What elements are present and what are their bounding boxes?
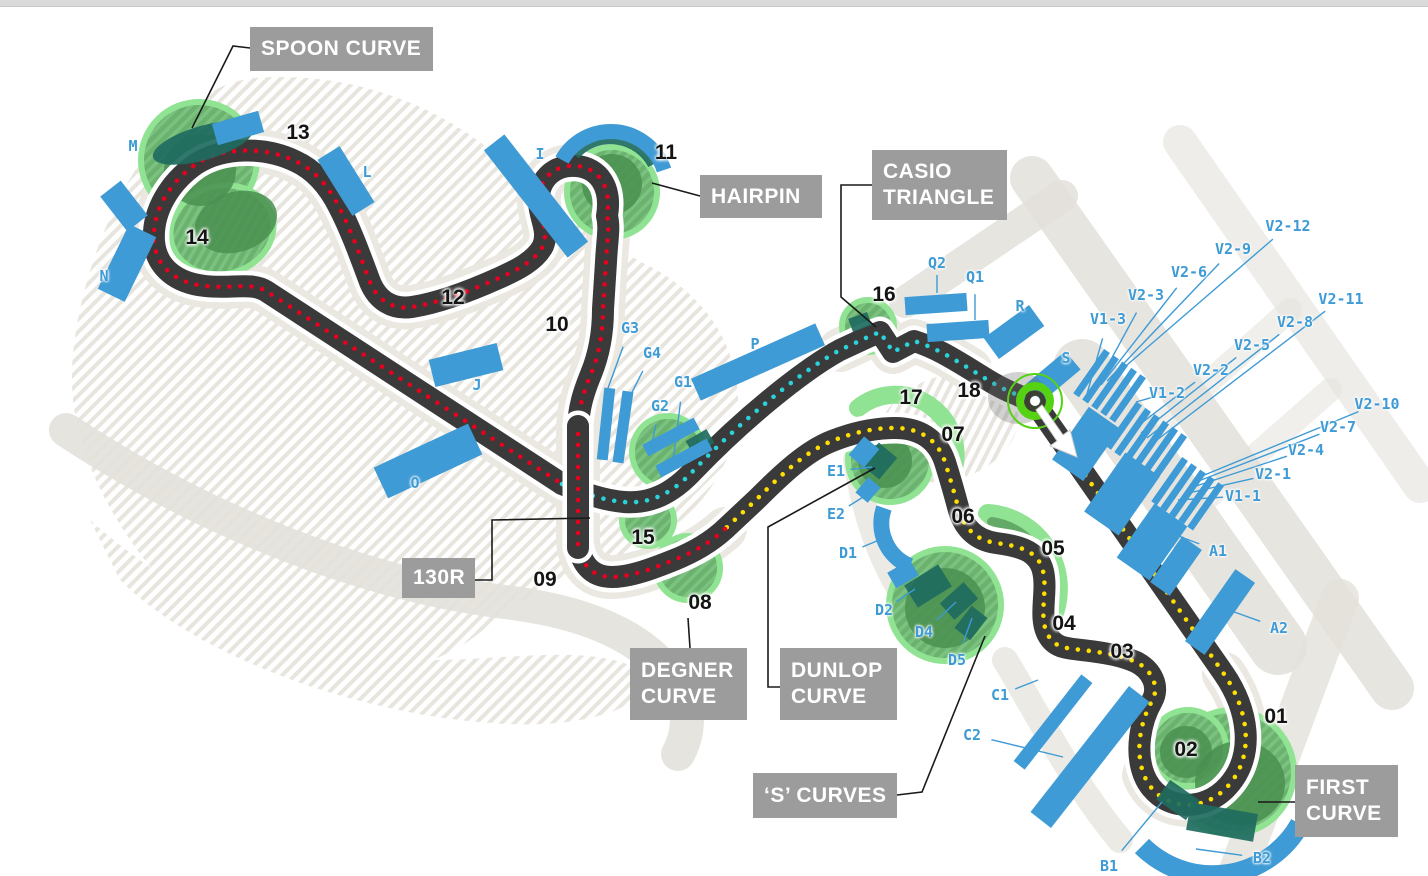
callout-text: CASIO (883, 159, 1007, 185)
callout-casio-triangle: CASIOTRIANGLE (872, 150, 1007, 220)
callout-130r: 130R (402, 558, 475, 598)
callout-text: CURVE (1306, 801, 1398, 827)
circuit-map-svg (0, 0, 1428, 876)
stand-label-v2-2: V2-2 (1193, 361, 1229, 379)
stand-label-b2: B2 (1253, 849, 1271, 867)
callout-text: TRIANGLE (883, 185, 1007, 211)
callout-text: CURVE (641, 684, 747, 710)
corner-label-08: 08 (688, 591, 711, 615)
callout-dunlop-curve: DUNLOPCURVE (780, 648, 897, 720)
stand-label-v1-3: V1-3 (1090, 310, 1126, 328)
stand-label-v2-12: V2-12 (1265, 217, 1310, 235)
stand-label-v2-4: V2-4 (1288, 441, 1324, 459)
corner-label-13: 13 (286, 121, 309, 145)
callout-text: SPOON CURVE (261, 36, 433, 62)
callout-text: HAIRPIN (711, 184, 822, 210)
stand-label-v2-1: V2-1 (1255, 465, 1291, 483)
corner-label-16: 16 (872, 283, 895, 307)
corner-label-06: 06 (951, 505, 974, 529)
stand-label-v1-1: V1-1 (1225, 487, 1261, 505)
stand-label-v2-11: V2-11 (1318, 290, 1363, 308)
stand-label-b1: B1 (1100, 857, 1118, 875)
stand-label-d2: D2 (875, 601, 893, 619)
corner-label-04: 04 (1052, 612, 1075, 636)
stand-label-v1-2: V1-2 (1149, 384, 1185, 402)
callout-degner-curve: DEGNERCURVE (630, 648, 747, 720)
stand-label-a2: A2 (1270, 619, 1288, 637)
stand-label-v2-7: V2-7 (1320, 418, 1356, 436)
corner-label-18: 18 (957, 379, 980, 403)
stand-label-v2-3: V2-3 (1128, 286, 1164, 304)
corner-label-03: 03 (1110, 640, 1133, 664)
stand-label-g1: G1 (674, 373, 692, 391)
stand-label-v2-6: V2-6 (1171, 263, 1207, 281)
stand-label-v2-5: V2-5 (1234, 336, 1270, 354)
callout-text: CURVE (791, 684, 897, 710)
stand-label-q1: Q1 (966, 268, 984, 286)
stand-label-g2: G2 (651, 397, 669, 415)
callout-s-curves: ‘S’ CURVES (753, 773, 897, 818)
callout-text: 130R (413, 565, 475, 591)
stand-label-n: N (99, 267, 108, 285)
callout-text: FIRST (1306, 775, 1398, 801)
callout-text: DEGNER (641, 658, 747, 684)
corner-label-10: 10 (545, 313, 568, 337)
corner-label-02: 02 (1174, 738, 1197, 762)
stand-label-v2-9: V2-9 (1215, 240, 1251, 258)
stand-label-p: P (750, 335, 759, 353)
callout-spoon-curve: SPOON CURVE (250, 27, 433, 71)
stand-label-r: R (1015, 297, 1024, 315)
corner-label-15: 15 (631, 526, 654, 550)
corner-label-12: 12 (441, 286, 464, 310)
stand-label-d5: D5 (948, 651, 966, 669)
corner-label-07: 07 (941, 423, 964, 447)
stand-label-c1: C1 (991, 686, 1009, 704)
corner-label-17: 17 (899, 386, 922, 410)
stand-label-c2: C2 (963, 726, 981, 744)
stand-label-g4: G4 (643, 344, 661, 362)
stand-label-g3: G3 (621, 319, 639, 337)
stand-label-q2: Q2 (928, 254, 946, 272)
stand-label-i: I (535, 145, 544, 163)
stand-label-l: L (362, 163, 371, 181)
corner-label-05: 05 (1041, 537, 1064, 561)
corner-label-14: 14 (185, 226, 208, 250)
callout-text: DUNLOP (791, 658, 897, 684)
stand-label-e2: E2 (827, 505, 845, 523)
suzuka-circuit-map: 010203040506070809101112131415161718MNLI… (0, 0, 1428, 876)
stand-label-v2-10: V2-10 (1354, 395, 1399, 413)
stand-label-a1: A1 (1209, 542, 1227, 560)
stand-label-s: S (1061, 349, 1070, 367)
callout-hairpin: HAIRPIN (700, 175, 822, 218)
stand-label-d4: D4 (915, 623, 933, 641)
callout-connector-degner-curve (688, 618, 690, 648)
corner-label-11: 11 (655, 141, 677, 165)
callout-text: ‘S’ CURVES (764, 783, 897, 809)
corner-label-09: 09 (533, 568, 556, 592)
stand-label-j: J (472, 376, 481, 394)
stand-label-e1: E1 (827, 462, 845, 480)
stand-label-m: M (128, 137, 137, 155)
corner-label-01: 01 (1264, 705, 1287, 729)
callout-first-curve: FIRSTCURVE (1295, 765, 1398, 837)
stand-label-o: O (410, 474, 419, 492)
stand-label-d1: D1 (839, 544, 857, 562)
stand-label-v2-8: V2-8 (1277, 313, 1313, 331)
